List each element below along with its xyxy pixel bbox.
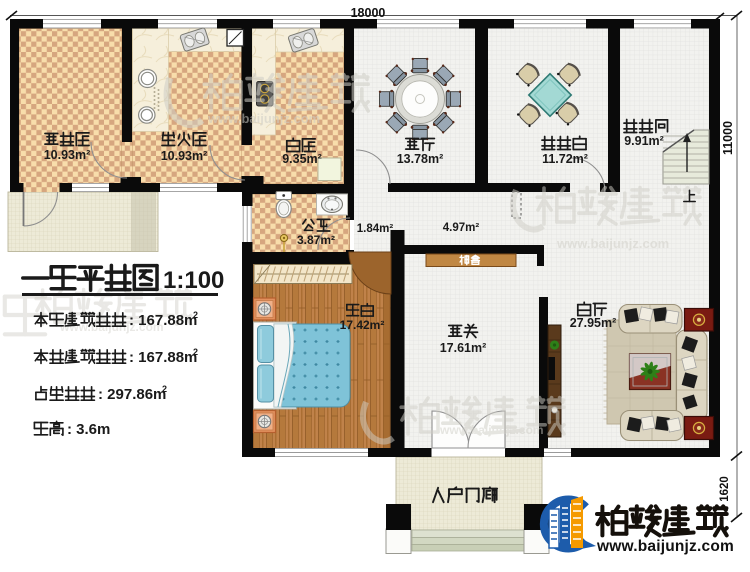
svg-text:2: 2 (162, 384, 167, 394)
svg-text:: 3.6m: : 3.6m (67, 421, 110, 438)
svg-text:www.baijunjz.com: www.baijunjz.com (439, 423, 544, 437)
svg-text:www.baijunjz.com: www.baijunjz.com (556, 236, 669, 251)
svg-text:1:100: 1:100 (163, 267, 224, 294)
svg-text:3.87m²: 3.87m² (297, 233, 335, 247)
svg-text:11000: 11000 (721, 121, 735, 155)
svg-text:: 167.88m: : 167.88m (129, 349, 197, 366)
svg-text:13.78m²: 13.78m² (397, 152, 444, 166)
svg-text:2: 2 (193, 347, 198, 357)
svg-text:10.93m²: 10.93m² (44, 148, 91, 162)
svg-text:10.93m²: 10.93m² (161, 149, 208, 163)
svg-text:: 297.86m: : 297.86m (98, 386, 166, 403)
svg-text:9.35m²: 9.35m² (282, 152, 322, 166)
svg-text:1620: 1620 (719, 476, 731, 502)
svg-text:www.baijunjz.com: www.baijunjz.com (207, 111, 320, 126)
svg-text:2: 2 (193, 310, 198, 320)
svg-text:9.91m²: 9.91m² (624, 134, 664, 148)
svg-text:18000: 18000 (351, 6, 386, 20)
svg-text:www.baijunjz.com: www.baijunjz.com (596, 538, 734, 555)
svg-text:1.84m²: 1.84m² (357, 223, 394, 235)
svg-text:: 167.88m: : 167.88m (129, 312, 197, 329)
svg-text:4.97m²: 4.97m² (443, 222, 480, 234)
svg-text:11.72m²: 11.72m² (542, 152, 588, 166)
svg-text:17.61m²: 17.61m² (440, 341, 487, 355)
svg-text:17.42m²: 17.42m² (340, 318, 385, 332)
svg-text:27.95m²: 27.95m² (570, 316, 617, 330)
